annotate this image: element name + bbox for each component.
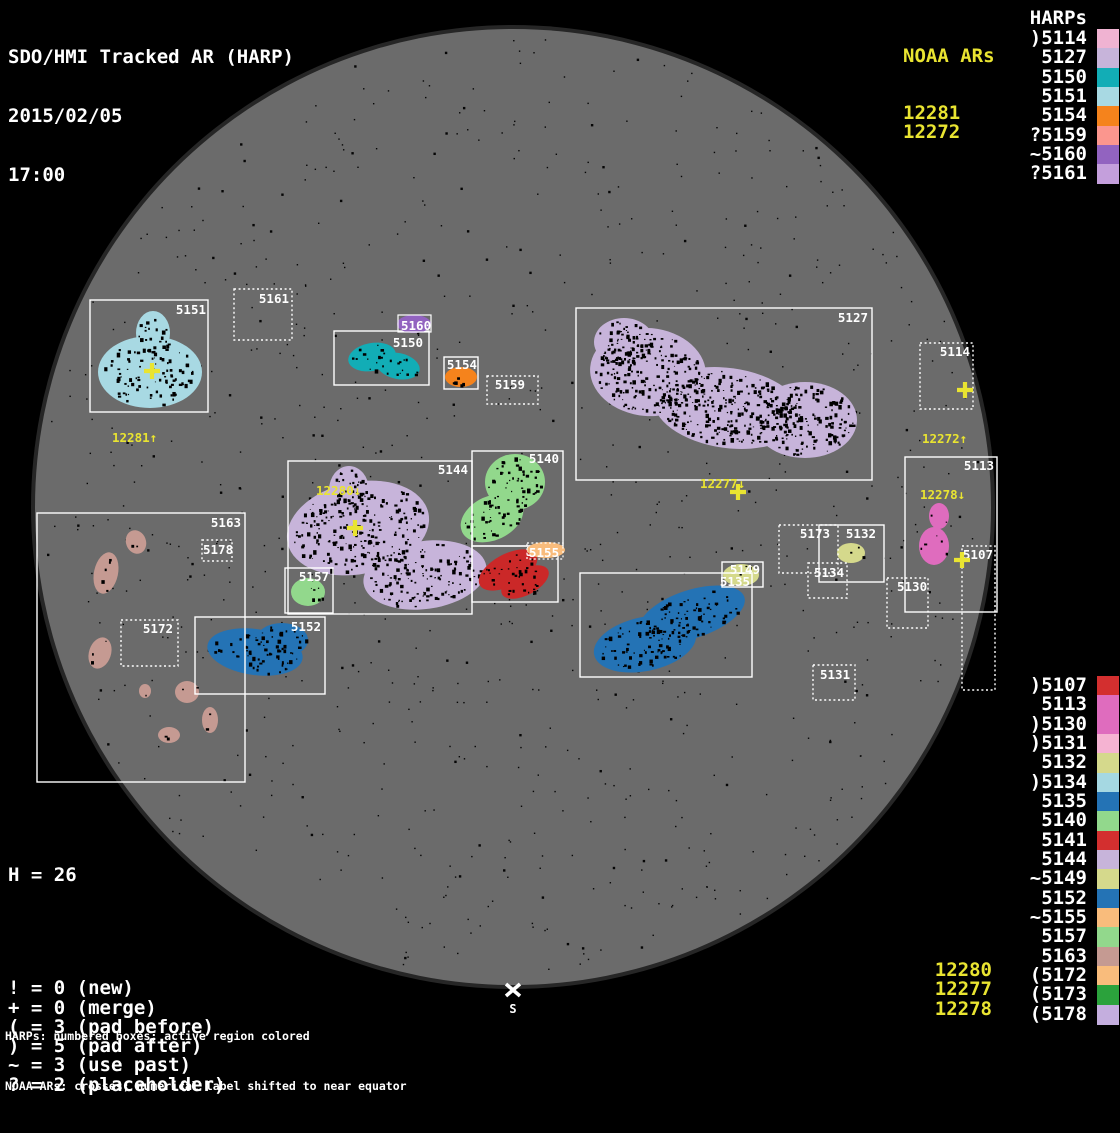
- disk-speckle: [408, 709, 409, 710]
- disk-speckle: [520, 63, 521, 64]
- region-speckle: [697, 424, 699, 425]
- region-speckle: [621, 358, 623, 360]
- disk-speckle: [315, 105, 316, 106]
- region-speckle: [680, 603, 683, 606]
- harp-box-label-5159: 5159: [495, 377, 525, 392]
- region-speckle: [690, 421, 691, 422]
- region-speckle: [685, 424, 686, 425]
- disk-speckle: [785, 471, 786, 472]
- disk-speckle: [611, 494, 612, 495]
- region-speckle: [797, 421, 799, 423]
- region-speckle: [686, 611, 688, 612]
- region-speckle: [140, 360, 143, 362]
- disk-speckle: [937, 681, 938, 682]
- region-speckle: [627, 644, 630, 646]
- region-speckle: [946, 553, 948, 556]
- region-speckle: [143, 349, 146, 353]
- disk-speckle: [719, 172, 720, 173]
- region-speckle: [657, 375, 660, 378]
- disk-speckle: [264, 717, 265, 718]
- region-speckle: [818, 419, 820, 420]
- region-speckle: [817, 389, 820, 392]
- region-speckle: [668, 602, 672, 606]
- disk-speckle: [786, 186, 787, 187]
- region-speckle: [459, 556, 460, 557]
- region-speckle: [516, 499, 518, 502]
- region-speckle: [526, 567, 528, 569]
- region-speckle: [311, 588, 312, 589]
- region-speckle: [602, 653, 603, 655]
- region-speckle: [659, 644, 663, 647]
- region-speckle: [701, 621, 703, 623]
- disk-speckle: [352, 664, 354, 666]
- disk-speckle: [246, 729, 248, 731]
- disk-speckle: [225, 279, 226, 280]
- region-speckle: [361, 545, 363, 546]
- region-speckle: [380, 589, 383, 593]
- disk-speckle: [252, 224, 254, 226]
- region-speckle: [611, 351, 613, 354]
- region-speckle: [375, 581, 377, 582]
- disk-speckle: [466, 662, 468, 664]
- region-speckle: [765, 420, 766, 421]
- region-speckle: [150, 397, 152, 399]
- region-speckle: [512, 590, 514, 593]
- disk-speckle: [475, 746, 476, 747]
- disk-speckle: [866, 497, 868, 499]
- region-speckle: [654, 626, 657, 628]
- region-speckle: [698, 404, 700, 407]
- region-speckle: [790, 394, 793, 398]
- region-speckle: [767, 389, 770, 391]
- region-speckle: [636, 622, 638, 624]
- disk-speckle: [231, 791, 232, 792]
- harp-id-label: 5135: [1020, 792, 1087, 811]
- region-speckle: [304, 513, 307, 517]
- region-speckle: [354, 556, 356, 557]
- disk-speckle: [613, 867, 615, 869]
- region-speckle: [373, 590, 374, 592]
- disk-speckle: [608, 191, 610, 193]
- disk-speckle: [388, 670, 389, 671]
- disk-speckle: [370, 662, 371, 663]
- disk-speckle: [187, 557, 188, 558]
- region-speckle: [663, 607, 665, 608]
- disk-speckle: [378, 815, 379, 816]
- region-speckle: [156, 328, 158, 331]
- region-speckle: [474, 576, 476, 577]
- region-speckle: [299, 641, 301, 644]
- harp-id-label: ~5160: [1020, 145, 1087, 164]
- disk-speckle: [867, 622, 868, 623]
- region-speckle: [296, 659, 297, 660]
- disk-speckle: [839, 265, 840, 266]
- disk-speckle: [786, 555, 787, 556]
- region-speckle: [467, 526, 470, 529]
- region-speckle: [312, 504, 313, 505]
- region-speckle: [617, 339, 618, 341]
- disk-speckle: [334, 313, 335, 314]
- region-speckle: [632, 408, 633, 409]
- region-speckle: [326, 517, 328, 519]
- region-speckle: [810, 386, 813, 389]
- region-speckle: [491, 505, 494, 507]
- region-speckle: [658, 649, 661, 651]
- region-speckle: [492, 579, 495, 582]
- disk-speckle: [548, 969, 549, 970]
- region-speckle: [268, 673, 270, 676]
- region-speckle: [632, 407, 634, 408]
- region-speckle: [536, 484, 538, 487]
- disk-speckle: [591, 294, 592, 295]
- region-speckle: [762, 387, 765, 389]
- disk-speckle: [817, 259, 818, 260]
- disk-speckle: [743, 255, 744, 256]
- disk-speckle: [939, 602, 940, 603]
- noaa-ar-number: 12280: [900, 961, 992, 980]
- region-speckle: [522, 583, 524, 585]
- region-speckle: [839, 423, 842, 425]
- region-speckle: [489, 500, 491, 502]
- disk-speckle: [322, 374, 323, 375]
- region-speckle: [475, 583, 477, 585]
- region-speckle: [339, 536, 342, 539]
- region-speckle: [517, 505, 520, 507]
- region-speckle: [426, 595, 429, 597]
- region-speckle: [698, 608, 702, 612]
- region-speckle: [393, 552, 394, 554]
- region-speckle: [738, 413, 741, 417]
- region-speckle: [713, 400, 714, 401]
- region-speckle: [354, 544, 357, 546]
- region-speckle: [946, 522, 947, 523]
- region-speckle: [401, 491, 403, 493]
- disk-speckle: [572, 670, 573, 671]
- region-speckle: [686, 429, 687, 430]
- disk-speckle: [486, 258, 488, 260]
- region-speckle: [790, 387, 792, 388]
- disk-speckle: [185, 651, 186, 652]
- disk-speckle: [733, 300, 734, 301]
- disk-speckle: [299, 405, 300, 406]
- disk-speckle: [209, 416, 210, 417]
- disk-speckle: [602, 560, 603, 561]
- region-speckle: [639, 327, 642, 330]
- disk-speckle: [421, 457, 422, 458]
- region-speckle: [316, 539, 318, 542]
- region-speckle: [617, 377, 620, 380]
- region-speckle: [519, 560, 521, 561]
- disk-speckle: [676, 224, 677, 225]
- title-block: SDO/HMI Tracked AR (HARP) 2015/02/05 17:…: [8, 9, 294, 224]
- harp-box-label-5173: 5173: [800, 526, 830, 541]
- disk-speckle: [271, 780, 272, 781]
- disk-speckle: [560, 254, 561, 255]
- region-speckle: [738, 431, 740, 433]
- disk-speckle: [408, 829, 409, 830]
- region-speckle: [215, 641, 218, 645]
- disk-speckle: [684, 692, 685, 693]
- region-speckle: [622, 346, 624, 348]
- region-speckle: [782, 402, 786, 406]
- disk-speckle: [665, 859, 667, 861]
- disk-speckle: [735, 150, 736, 151]
- region-speckle: [614, 373, 615, 375]
- disk-speckle: [413, 177, 414, 178]
- region-speckle: [620, 390, 623, 394]
- region-speckle: [323, 560, 325, 562]
- disk-speckle: [518, 150, 519, 151]
- region-speckle: [329, 540, 331, 542]
- disk-speckle: [782, 366, 783, 367]
- disk-speckle: [610, 882, 611, 883]
- region-speckle: [726, 596, 728, 598]
- region-speckle: [162, 345, 166, 349]
- disk-speckle: [113, 465, 114, 466]
- disk-speckle: [503, 869, 505, 871]
- region-speckle: [659, 387, 662, 389]
- region-speckle: [439, 559, 442, 562]
- region-speckle: [214, 651, 217, 654]
- noaa-ar-number: 12277: [900, 980, 992, 999]
- disk-speckle: [785, 854, 786, 855]
- region-speckle: [835, 402, 838, 406]
- disk-speckle: [446, 659, 448, 661]
- region-speckle: [179, 369, 182, 372]
- region-speckle: [747, 430, 751, 434]
- disk-speckle: [265, 571, 266, 572]
- region-speckle: [941, 540, 943, 542]
- region-speckle: [378, 525, 380, 526]
- region-speckle: [111, 364, 113, 366]
- region-speckle: [840, 399, 843, 401]
- disk-speckle: [855, 690, 857, 692]
- region-speckle: [277, 649, 280, 652]
- disk-speckle: [54, 526, 55, 527]
- region-speckle: [662, 380, 664, 383]
- disk-speckle: [600, 209, 601, 210]
- region-speckle: [162, 404, 165, 407]
- region-speckle: [625, 326, 628, 328]
- harp-box-label-5114: 5114: [940, 344, 970, 359]
- region-speckle: [670, 619, 673, 623]
- disk-speckle: [534, 833, 535, 834]
- region-speckle: [839, 444, 841, 446]
- region-speckle: [343, 526, 347, 528]
- region-speckle: [125, 393, 127, 395]
- region-speckle: [382, 573, 384, 576]
- disk-speckle: [682, 888, 683, 889]
- region-speckle: [844, 421, 846, 423]
- region-speckle: [763, 427, 766, 430]
- disk-speckle: [842, 353, 843, 354]
- disk-speckle: [677, 696, 678, 697]
- region-speckle: [791, 408, 794, 411]
- region-speckle: [687, 421, 689, 423]
- region-speckle: [667, 399, 670, 403]
- disk-speckle: [306, 825, 307, 826]
- disk-speckle: [162, 636, 163, 637]
- disk-speckle: [191, 563, 193, 565]
- region-speckle: [661, 619, 662, 621]
- region-speckle: [622, 399, 623, 400]
- region-speckle: [502, 472, 504, 473]
- region-speckle: [348, 499, 351, 502]
- region-speckle: [167, 738, 170, 741]
- harp-color-swatch: [1097, 985, 1119, 1005]
- disk-speckle: [671, 906, 672, 907]
- disk-speckle: [751, 177, 752, 178]
- disk-speckle: [583, 953, 584, 954]
- region-speckle: [415, 562, 417, 563]
- region-speckle: [786, 447, 789, 451]
- region-speckle: [662, 650, 665, 652]
- region-speckle: [620, 627, 622, 629]
- disk-speckle: [211, 619, 212, 620]
- region-speckle: [342, 479, 344, 481]
- region-speckle: [633, 362, 635, 365]
- harp-id-label: ~5155: [1020, 908, 1087, 927]
- region-speckle: [750, 415, 753, 418]
- disk-speckle: [647, 601, 648, 602]
- disk-speckle: [675, 826, 676, 827]
- region-speckle: [668, 395, 670, 398]
- region-speckle: [717, 417, 719, 420]
- disk-speckle: [488, 906, 489, 907]
- region-speckle: [684, 371, 686, 373]
- harp-color-swatch: [1097, 106, 1119, 126]
- harp-color-swatch: [1097, 29, 1119, 49]
- harp-id-label: ~5149: [1020, 869, 1087, 888]
- disk-speckle: [179, 795, 180, 796]
- region-speckle: [805, 418, 807, 419]
- disk-speckle: [330, 279, 331, 280]
- disk-speckle: [612, 444, 613, 445]
- disk-speckle: [664, 65, 665, 66]
- disk-speckle: [251, 307, 252, 308]
- disk-speckle: [554, 791, 555, 792]
- region-speckle: [640, 344, 643, 348]
- region-speckle: [605, 383, 608, 386]
- region-speckle: [437, 598, 439, 600]
- disk-speckle: [585, 172, 586, 173]
- region-speckle: [356, 565, 358, 567]
- region-speckle: [381, 349, 385, 352]
- harp-label-5160: 5160: [401, 318, 431, 333]
- region-speckle: [356, 506, 359, 508]
- harp-id-label: )5114: [1020, 29, 1087, 48]
- disk-speckle: [369, 244, 370, 245]
- region-speckle: [336, 479, 339, 482]
- disk-speckle: [197, 651, 198, 652]
- region-speckle: [286, 630, 288, 632]
- disk-speckle: [635, 482, 636, 483]
- region-speckle: [152, 358, 154, 360]
- region-speckle: [404, 359, 405, 361]
- region-speckle: [681, 635, 682, 636]
- disk-speckle: [268, 698, 269, 699]
- harp-color-swatch: [1097, 811, 1119, 831]
- region-speckle: [455, 569, 456, 571]
- disk-speckle: [740, 913, 741, 914]
- region-speckle: [123, 392, 126, 394]
- disk-speckle: [762, 302, 763, 303]
- region-speckle: [681, 402, 683, 404]
- region-speckle: [599, 332, 601, 334]
- disk-speckle: [643, 891, 644, 892]
- region-speckle: [340, 547, 344, 551]
- region-speckle: [679, 644, 681, 645]
- region-speckle: [849, 424, 852, 427]
- disk-speckle: [201, 461, 202, 462]
- region-speckle: [714, 429, 717, 432]
- region-speckle: [454, 381, 457, 385]
- region-speckle: [614, 399, 615, 401]
- disk-speckle: [285, 676, 286, 677]
- region-speckle: [390, 518, 392, 520]
- region-speckle: [276, 645, 279, 648]
- region-speckle: [270, 629, 273, 631]
- region-speckle: [733, 396, 736, 398]
- disk-speckle: [726, 784, 728, 786]
- noaa-disk-label-12280: 12280↓: [316, 483, 361, 498]
- disk-speckle: [610, 262, 611, 263]
- disk-speckle: [846, 471, 848, 473]
- region-speckle: [619, 323, 620, 325]
- region-speckle: [852, 423, 853, 424]
- region-speckle: [724, 427, 727, 431]
- region-speckle: [160, 357, 162, 360]
- region-speckle: [645, 651, 647, 654]
- region-speckle: [313, 589, 315, 591]
- region-speckle: [751, 412, 754, 415]
- disk-speckle: [126, 590, 127, 591]
- disk-speckle: [504, 857, 505, 858]
- disk-speckle: [588, 959, 589, 960]
- disk-speckle: [469, 295, 470, 296]
- disk-speckle: [497, 403, 498, 404]
- region-speckle: [395, 579, 397, 580]
- disk-speckle: [473, 88, 474, 89]
- disk-speckle: [124, 322, 125, 323]
- disk-speckle: [454, 761, 456, 763]
- disk-speckle: [414, 848, 415, 849]
- region-speckle: [263, 645, 264, 646]
- region-speckle: [832, 401, 835, 405]
- region-speckle: [375, 369, 379, 373]
- disk-speckle: [509, 621, 510, 622]
- disk-speckle: [494, 603, 495, 604]
- disk-speckle: [260, 416, 262, 418]
- harp-color-swatch: [1097, 126, 1119, 146]
- region-speckle: [402, 518, 404, 519]
- region-speckle: [697, 634, 699, 637]
- region-speckle: [521, 488, 523, 489]
- region-speckle: [169, 386, 172, 389]
- region-speckle: [771, 386, 775, 390]
- disk-speckle: [820, 181, 821, 182]
- disk-speckle: [112, 588, 113, 589]
- region-speckle: [617, 343, 619, 344]
- region-speckle: [644, 339, 645, 340]
- region-speckle: [694, 364, 695, 365]
- harp-count: H = 26: [8, 866, 225, 885]
- region-speckle: [839, 427, 842, 429]
- disk-speckle: [274, 418, 275, 419]
- disk-speckle: [318, 223, 319, 224]
- disk-speckle: [447, 481, 448, 482]
- region-speckle: [660, 346, 662, 348]
